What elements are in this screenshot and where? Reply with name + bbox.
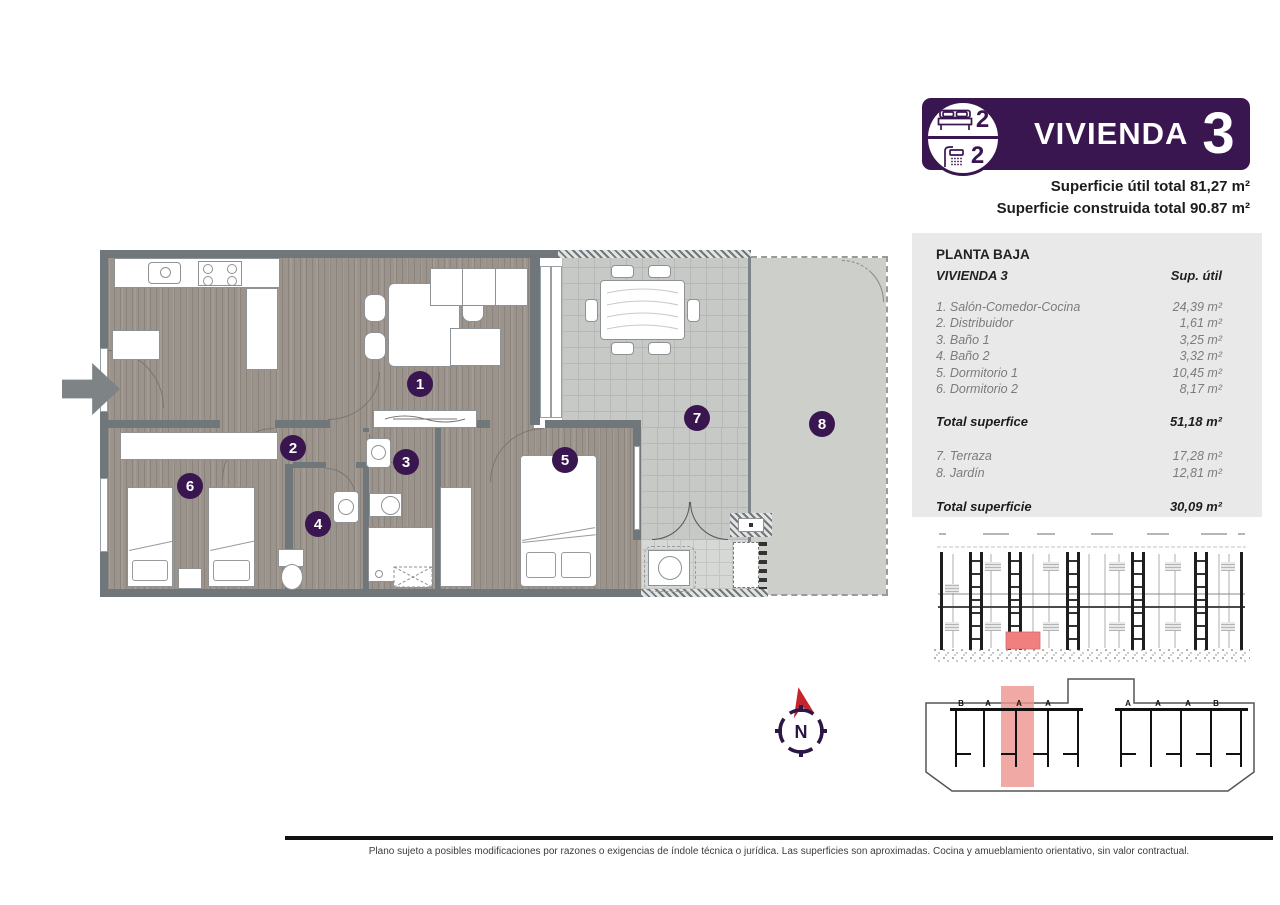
nightstand bbox=[178, 568, 202, 589]
unit-letter: A bbox=[1016, 699, 1022, 708]
bathrooms-count: 2 bbox=[928, 139, 998, 172]
floor-label: PLANTA BAJA bbox=[936, 247, 1222, 262]
shower-mat bbox=[393, 566, 433, 588]
table-wood-grain bbox=[603, 283, 682, 337]
chair bbox=[648, 342, 671, 355]
garden-boundary bbox=[751, 594, 888, 596]
window bbox=[634, 446, 640, 530]
room-label: 6. Dormitorio 2 bbox=[936, 381, 1018, 398]
wall-segment bbox=[108, 420, 220, 428]
window-glass-line bbox=[550, 266, 552, 418]
floor-plan: 1 2 3 4 5 6 7 8 bbox=[100, 250, 890, 600]
room-marker-1: 1 bbox=[407, 371, 433, 397]
superficie-util-total: Superficie útil total 81,27 m² bbox=[997, 176, 1250, 198]
burner bbox=[203, 264, 213, 274]
cabinet bbox=[112, 330, 160, 360]
site-plan: B A A A A A A B bbox=[918, 675, 1262, 802]
unit-letter: B bbox=[1213, 699, 1219, 708]
room-label: 1. Salón-Comedor-Cocina bbox=[936, 299, 1080, 316]
room-area: 1,61 m² bbox=[1180, 315, 1222, 332]
sink-drain bbox=[160, 267, 171, 278]
unit-letter: A bbox=[985, 699, 991, 708]
room-area: 12,81 m² bbox=[1173, 465, 1222, 482]
table-row: 8. Jardín12,81 m² bbox=[936, 465, 1222, 482]
table-header-row: VIVIENDA 3 Sup. útil bbox=[936, 268, 1222, 285]
total-area: 30,09 m² bbox=[1170, 499, 1222, 516]
kitchen-counter bbox=[114, 258, 280, 288]
room-label: 4. Baño 2 bbox=[936, 348, 990, 365]
table-row: 5. Dormitorio 110,45 m² bbox=[936, 365, 1222, 382]
wall-segment bbox=[293, 462, 326, 468]
pillow bbox=[561, 552, 591, 578]
chair bbox=[364, 332, 386, 360]
table-row: 2. Distribuidor1,61 m² bbox=[936, 315, 1222, 332]
footer-rule bbox=[285, 836, 1273, 840]
room-area: 17,28 m² bbox=[1173, 448, 1222, 465]
wall-segment bbox=[356, 462, 363, 468]
pillow bbox=[213, 560, 250, 581]
vivienda-label: VIVIENDA bbox=[1034, 116, 1188, 152]
hatched-wall bbox=[558, 250, 751, 258]
surface-summary: Superficie útil total 81,27 m² Superfici… bbox=[997, 176, 1250, 220]
room-area: 24,39 m² bbox=[1173, 299, 1222, 316]
table-row: 4. Baño 23,32 m² bbox=[936, 348, 1222, 365]
unit-letter: B bbox=[958, 699, 964, 708]
room-marker-7: 7 bbox=[684, 405, 710, 431]
toilet-bowl bbox=[381, 496, 400, 515]
building-outline bbox=[926, 679, 1254, 791]
wall-segment bbox=[100, 589, 648, 597]
disclaimer-text: Plano sujeto a posibles modificaciones p… bbox=[285, 846, 1273, 857]
room-marker-2: 2 bbox=[280, 435, 306, 461]
garden-boundary bbox=[751, 256, 888, 258]
wall-segment bbox=[275, 420, 330, 428]
garden-boundary bbox=[886, 256, 888, 595]
room-area: 3,32 m² bbox=[1180, 348, 1222, 365]
bed-icon bbox=[937, 109, 973, 131]
ground-hatch bbox=[933, 648, 1250, 662]
table-row: 3. Baño 13,25 m² bbox=[936, 332, 1222, 349]
meter-dot bbox=[749, 523, 753, 527]
room-marker-4: 4 bbox=[305, 511, 331, 537]
chair bbox=[585, 299, 598, 322]
window bbox=[100, 478, 108, 552]
highlighted-unit-elevation bbox=[1006, 632, 1040, 649]
bathrooms-number: 2 bbox=[971, 144, 984, 168]
total-exterior-row: Total superficie30,09 m² bbox=[936, 499, 1222, 516]
chair bbox=[648, 265, 671, 278]
total-label: Total superfice bbox=[936, 414, 1028, 431]
badge-title: VIVIENDA 3 bbox=[1034, 98, 1235, 170]
bedrooms-count: 2 bbox=[928, 103, 998, 136]
room-area: 10,45 m² bbox=[1173, 365, 1222, 382]
basin-bowl bbox=[338, 499, 354, 515]
room-marker-6: 6 bbox=[177, 473, 203, 499]
table-row: 6. Dormitorio 28,17 m² bbox=[936, 381, 1222, 398]
room-marker-3: 3 bbox=[393, 449, 419, 475]
shower-drain bbox=[375, 570, 383, 578]
unit-letter: A bbox=[1125, 699, 1131, 708]
col-header: Sup. útil bbox=[1171, 268, 1222, 285]
storage-unit bbox=[733, 542, 759, 588]
unit-letter: A bbox=[1155, 699, 1161, 708]
pillow bbox=[132, 560, 168, 581]
wall-segment bbox=[363, 428, 369, 432]
pillow bbox=[526, 552, 556, 578]
coffee-table bbox=[450, 328, 501, 366]
floorplan-sheet: { "header": { "badge": { "bedrooms": "2"… bbox=[0, 0, 1280, 905]
chair bbox=[364, 294, 386, 322]
utility-steps bbox=[759, 542, 767, 589]
wardrobe bbox=[440, 487, 472, 587]
kitchen-peninsula bbox=[246, 288, 278, 370]
room-marker-5: 5 bbox=[552, 447, 578, 473]
total-interior-row: Total superfice51,18 m² bbox=[936, 414, 1222, 431]
burner bbox=[203, 276, 213, 286]
vivienda-badge: 2 2 VIVIENDA 3 bbox=[922, 98, 1250, 170]
unit-label: VIVIENDA 3 bbox=[936, 268, 1008, 285]
vivienda-number: 3 bbox=[1202, 108, 1234, 160]
sofa-seam bbox=[495, 269, 496, 305]
room-label: 2. Distribuidor bbox=[936, 315, 1013, 332]
room-label: 8. Jardín bbox=[936, 465, 985, 482]
tv-icon bbox=[383, 412, 467, 426]
compass-n-label: N bbox=[795, 722, 808, 742]
sofa bbox=[430, 268, 528, 306]
area-table: PLANTA BAJA VIVIENDA 3 Sup. útil 1. Saló… bbox=[912, 233, 1262, 517]
chair bbox=[687, 299, 700, 322]
room-label: 3. Baño 1 bbox=[936, 332, 990, 349]
basin-bowl bbox=[371, 445, 386, 460]
room-label: 7. Terraza bbox=[936, 448, 992, 465]
wall-segment bbox=[100, 250, 558, 258]
sofa-seam bbox=[462, 269, 463, 305]
total-area: 51,18 m² bbox=[1170, 414, 1222, 431]
bedrooms-number: 2 bbox=[976, 108, 989, 132]
wardrobe bbox=[120, 432, 278, 460]
chair bbox=[611, 265, 634, 278]
shower-icon bbox=[942, 144, 968, 168]
wall-segment bbox=[530, 258, 540, 425]
north-compass: N bbox=[771, 684, 831, 760]
room-label: 5. Dormitorio 1 bbox=[936, 365, 1018, 382]
room-area: 3,25 m² bbox=[1180, 332, 1222, 349]
terrace-fence bbox=[748, 258, 751, 589]
burner bbox=[227, 264, 237, 274]
unit-letter: A bbox=[1185, 699, 1191, 708]
toilet-bowl bbox=[281, 564, 303, 590]
superficie-construida-total: Superficie construida total 90.87 m² bbox=[997, 198, 1250, 220]
building-elevation bbox=[933, 528, 1250, 665]
unit-letter: A bbox=[1045, 699, 1051, 708]
rooms-count-circle: 2 2 bbox=[925, 100, 1001, 176]
elevation-windows bbox=[945, 562, 1235, 631]
burner bbox=[227, 276, 237, 286]
chair bbox=[611, 342, 634, 355]
elevation-top-labels bbox=[939, 533, 1245, 535]
room-area: 8,17 m² bbox=[1180, 381, 1222, 398]
room-marker-8: 8 bbox=[809, 411, 835, 437]
washer-clearance bbox=[644, 546, 696, 592]
total-label: Total superficie bbox=[936, 499, 1032, 516]
table-row: 7. Terraza17,28 m² bbox=[936, 448, 1222, 465]
wall-segment bbox=[545, 420, 641, 428]
table-row: 1. Salón-Comedor-Cocina24,39 m² bbox=[936, 299, 1222, 316]
